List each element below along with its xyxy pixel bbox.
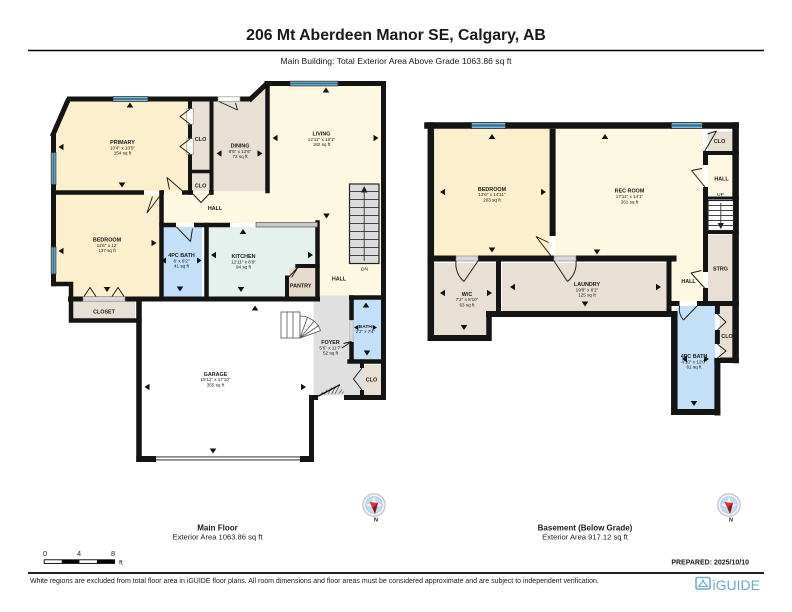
svg-text:182 sq ft: 182 sq ft [313, 142, 331, 147]
svg-text:Main Floor: Main Floor [197, 524, 237, 533]
svg-text:12'11" x 16'1": 12'11" x 16'1" [308, 137, 336, 142]
svg-text:94 sq ft: 94 sq ft [236, 265, 252, 270]
svg-text:52 sq ft: 52 sq ft [323, 351, 339, 356]
svg-text:19'8" x 6'2": 19'8" x 6'2" [576, 287, 599, 292]
svg-text:Basement (Below Grade): Basement (Below Grade) [538, 524, 633, 533]
svg-text:12'11" x 8'9": 12'11" x 8'9" [231, 259, 256, 264]
svg-text:HALL: HALL [332, 277, 347, 283]
svg-text:DN: DN [361, 267, 368, 273]
svg-text:HALL: HALL [681, 279, 696, 285]
svg-text:5'6" x 11'7": 5'6" x 11'7" [319, 345, 342, 350]
svg-text:17'11" x 14'1": 17'11" x 14'1" [616, 194, 644, 199]
svg-text:CLO: CLO [195, 137, 206, 143]
svg-text:White regions are excluded fro: White regions are excluded from total fl… [30, 578, 599, 585]
svg-text:PANTRY: PANTRY [290, 284, 312, 290]
svg-text:41 sq ft: 41 sq ft [174, 264, 190, 269]
svg-text:8' x 6'2": 8' x 6'2" [174, 258, 190, 263]
svg-text:CLO: CLO [195, 184, 206, 190]
svg-text:19'11" x 17'10": 19'11" x 17'10" [201, 377, 231, 382]
svg-text:N: N [374, 518, 378, 524]
svg-text:154 sq ft: 154 sq ft [114, 151, 132, 156]
svg-text:10'4" x 10'5": 10'4" x 10'5" [110, 145, 136, 150]
svg-text:0: 0 [43, 549, 47, 558]
svg-text:203 sq ft: 203 sq ft [483, 197, 501, 202]
svg-text:4'10" x 12'0": 4'10" x 12'0" [681, 359, 707, 364]
svg-text:HALL: HALL [208, 206, 223, 212]
svg-text:72 sq ft: 72 sq ft [232, 154, 248, 159]
svg-text:ft: ft [119, 560, 123, 567]
svg-text:4: 4 [77, 549, 81, 558]
svg-text:8: 8 [111, 549, 115, 558]
svg-text:355 sq ft: 355 sq ft [207, 382, 225, 387]
svg-text:137 sq ft: 137 sq ft [98, 248, 116, 253]
svg-text:13'6" x 14'11": 13'6" x 14'11" [478, 192, 506, 197]
svg-text:7'2" x 8'10": 7'2" x 8'10" [456, 297, 479, 302]
svg-text:8'5" x 12'6": 8'5" x 12'6" [229, 149, 252, 154]
svg-text:PREPARED: 2025/10/10: PREPARED: 2025/10/10 [671, 560, 749, 567]
svg-text:UP: UP [717, 192, 724, 198]
svg-text:CLO: CLO [714, 139, 725, 145]
svg-text:STRG: STRG [713, 267, 728, 273]
svg-text:CLO: CLO [721, 334, 732, 340]
svg-text:Exterior Area 917.12 sq ft: Exterior Area 917.12 sq ft [542, 533, 629, 542]
svg-text:261 sq ft: 261 sq ft [621, 199, 639, 204]
svg-text:CLO: CLO [366, 378, 377, 384]
svg-text:iGUIDE: iGUIDE [713, 577, 760, 593]
svg-text:11'6" x 12': 11'6" x 12' [97, 243, 118, 248]
svg-text:206 Mt Aberdeen Manor SE, Calg: 206 Mt Aberdeen Manor SE, Calgary, AB [246, 27, 546, 44]
svg-text:Main Building: Total Exterior: Main Building: Total Exterior Area Above… [280, 56, 512, 66]
svg-text:CLOSET: CLOSET [93, 310, 116, 316]
svg-text:63 sq ft: 63 sq ft [459, 302, 475, 307]
svg-text:2'2" x 7'4": 2'2" x 7'4" [356, 329, 376, 334]
svg-text:Exterior Area 1063.86 sq ft: Exterior Area 1063.86 sq ft [173, 533, 264, 542]
svg-text:125 sq ft: 125 sq ft [578, 293, 596, 298]
svg-text:HALL: HALL [714, 177, 729, 183]
svg-text:61 sq ft: 61 sq ft [686, 365, 702, 370]
svg-text:N: N [729, 518, 733, 524]
